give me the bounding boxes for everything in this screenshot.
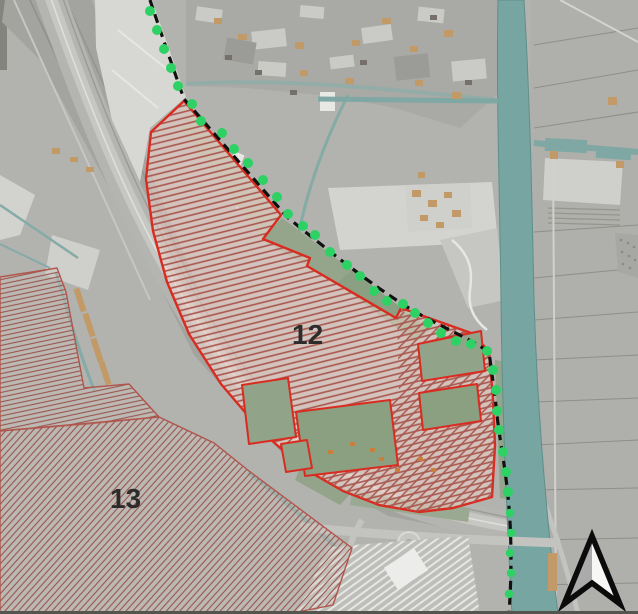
- zone-12-label: 12: [292, 319, 323, 350]
- canal-branch-west: [318, 99, 498, 101]
- water-basin: [545, 138, 588, 153]
- water-basin: [596, 146, 632, 160]
- zone-13-label: 13: [110, 483, 141, 514]
- map-frame: 12 13: [0, 0, 638, 614]
- aerial-map-svg: 12 13: [0, 0, 638, 614]
